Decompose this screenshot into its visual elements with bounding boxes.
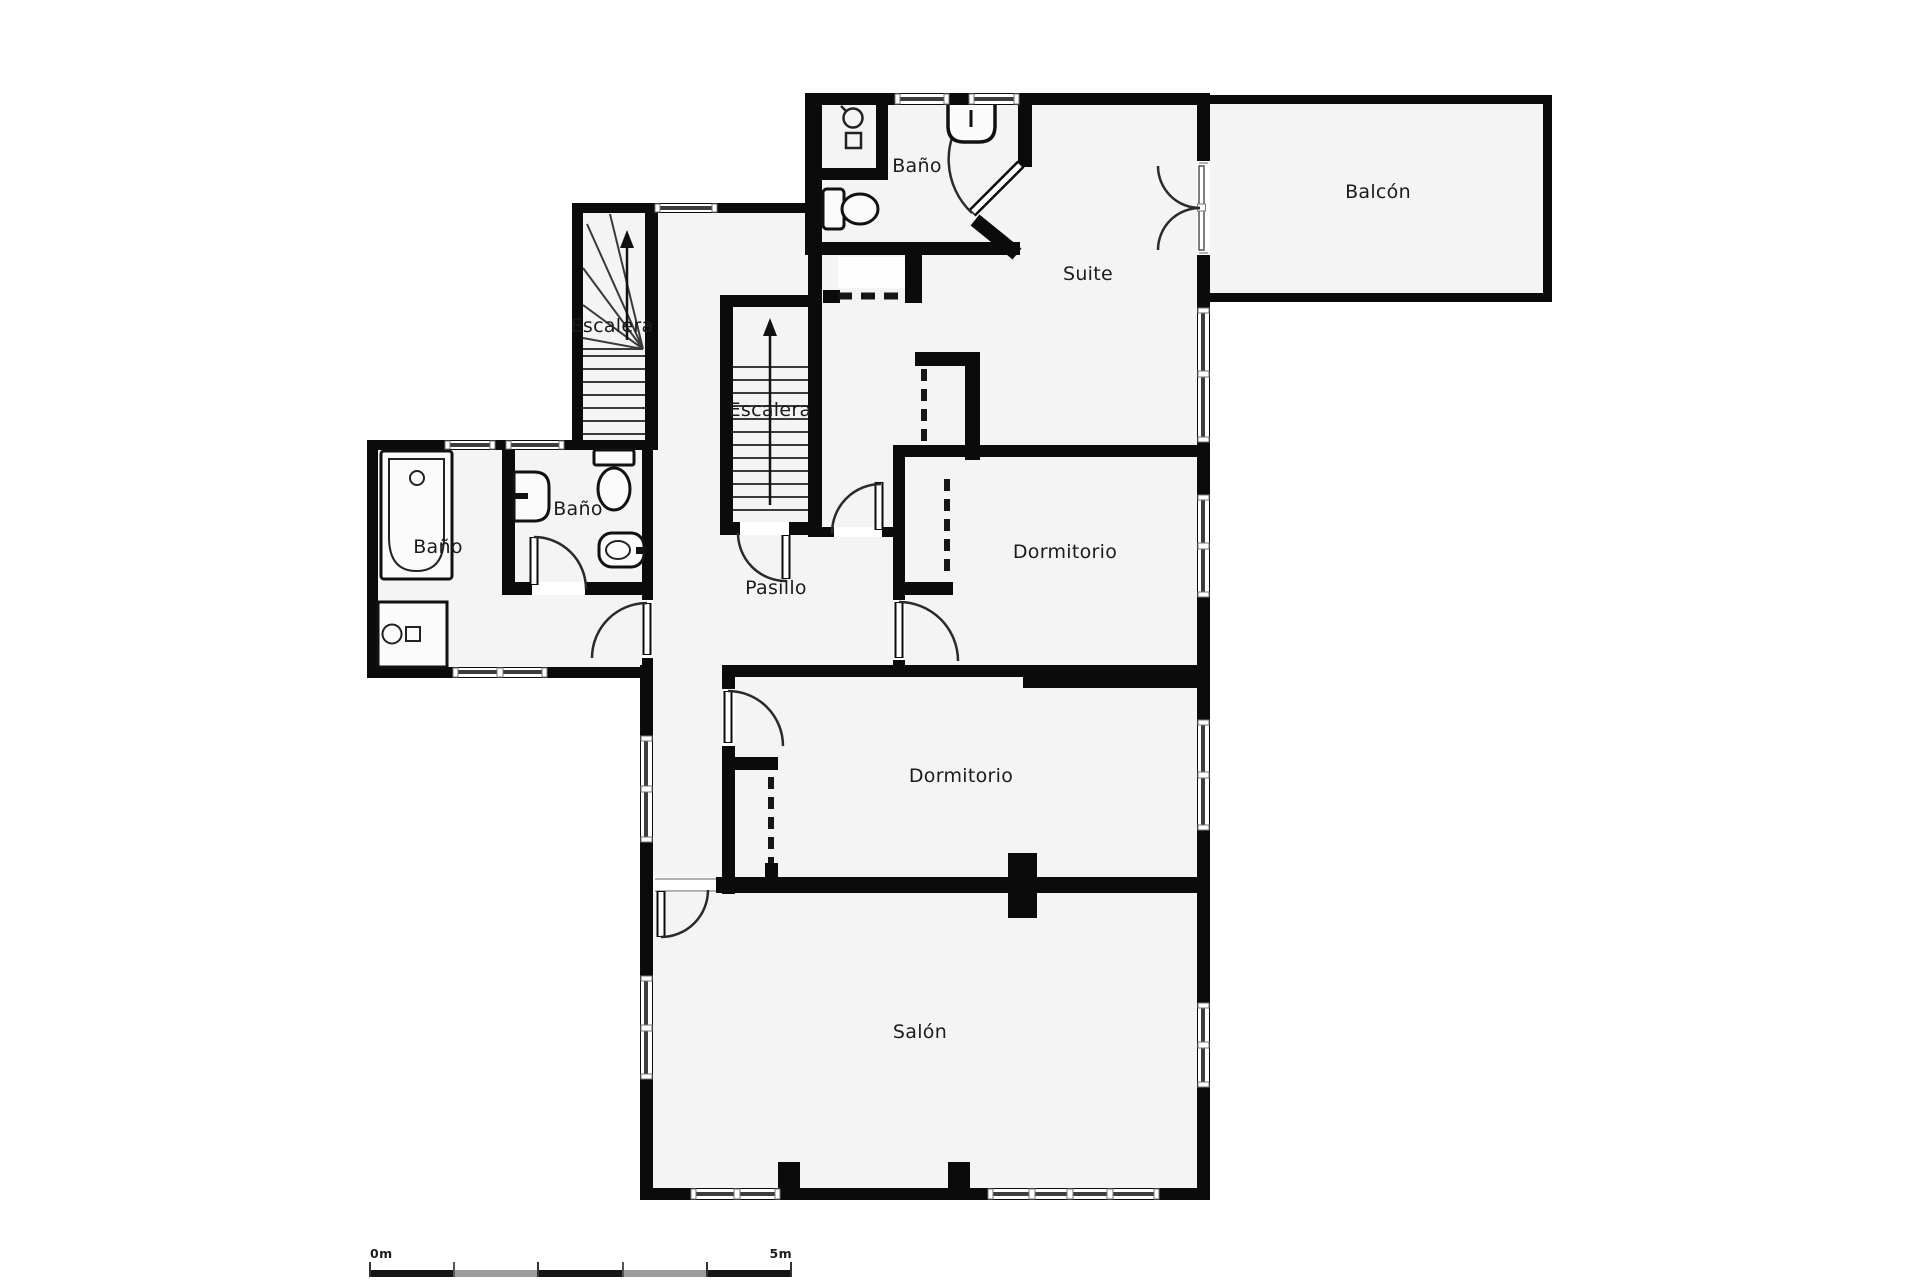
room-label-escalera-center: Escalera [729, 399, 812, 421]
scale-bar [369, 1262, 792, 1277]
window-icon-salon-right [1198, 1003, 1209, 1087]
scale-end-label: 5m [769, 1246, 792, 1261]
window-icon-dormitorio2-right [1198, 720, 1209, 830]
room-floors [367, 93, 1552, 1200]
window-icon-bath-bottom [453, 668, 547, 677]
room-label-suite: Suite [1063, 263, 1113, 285]
window-icon-bath-mid-top [506, 441, 564, 449]
room-label-bano-left: Baño [413, 536, 463, 558]
room-label-bano-top: Baño [892, 155, 942, 177]
floor-plan-drawing [0, 0, 1920, 1280]
floor-plan-canvas: Baño Suite Balcón Escalera Escalera Baño… [0, 0, 1920, 1280]
room-label-dormitorio-center: Dormitorio [909, 765, 1013, 787]
window-icon-salon-bottom-right [988, 1189, 1159, 1199]
sliding-door-pocket [838, 257, 905, 288]
scale-start-label: 0m [370, 1246, 393, 1261]
window-icon-bath-top-a [895, 94, 949, 104]
window-icon-salon-left [641, 976, 652, 1079]
bathtub-icon [381, 451, 452, 579]
window-icon-corridor-top [655, 204, 717, 212]
room-label-pasillo: Pasillo [745, 577, 807, 599]
window-icon-suite-right [1198, 308, 1209, 442]
room-label-dormitorio-right: Dormitorio [1013, 541, 1117, 563]
toilet-icon-bath-top [823, 189, 878, 229]
bidet-icon [599, 533, 644, 567]
washing-machine-icon [378, 602, 447, 667]
room-label-salon: Salón [893, 1021, 947, 1043]
sink-icon-bath-top [948, 105, 995, 142]
window-icon-salon-bottom-left [691, 1189, 780, 1199]
sink-icon-bath-middle [514, 472, 549, 521]
window-icon-pasillo-left [641, 736, 652, 842]
window-icon-bath-top-b [969, 94, 1019, 104]
window-icon-dormitorio-right [1198, 495, 1209, 597]
window-icon-bath-left-top [445, 441, 495, 449]
room-label-escalera-upper: Escalera [571, 315, 654, 337]
room-label-balcon: Balcón [1345, 181, 1411, 203]
room-label-bano-middle: Baño [553, 498, 603, 520]
